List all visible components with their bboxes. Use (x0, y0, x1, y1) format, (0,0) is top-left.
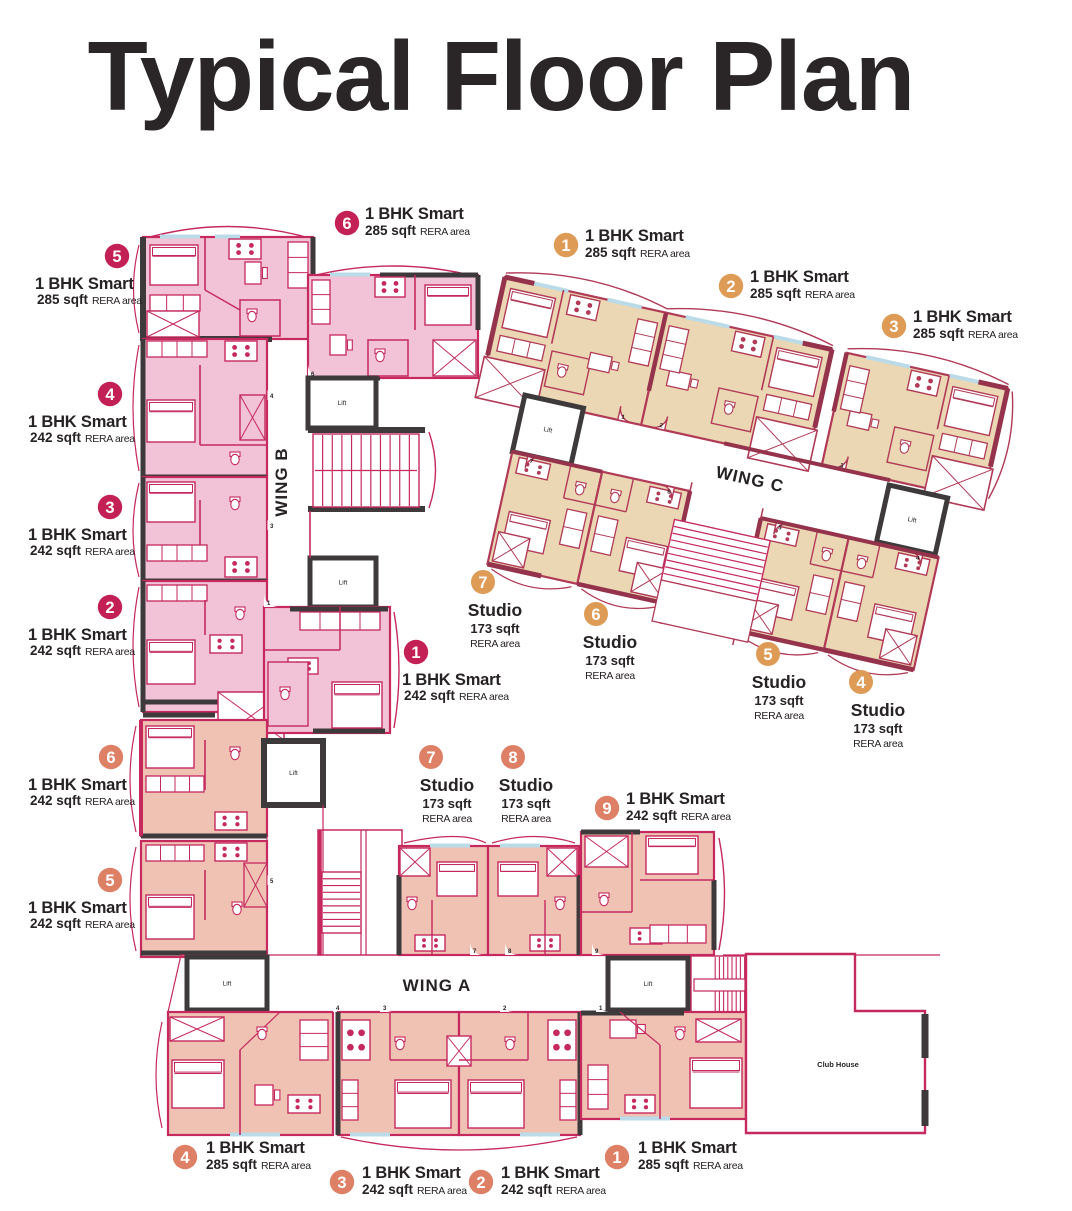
svg-text:1: 1 (561, 237, 570, 255)
svg-text:242 sqft: 242 sqft (30, 793, 82, 808)
svg-text:RERA area: RERA area (85, 919, 135, 931)
svg-text:RERA area: RERA area (261, 1160, 311, 1172)
svg-text:285 sqft: 285 sqft (585, 245, 637, 260)
svg-text:6: 6 (106, 749, 115, 767)
svg-text:1 BHK Smart: 1 BHK Smart (365, 205, 464, 223)
svg-text:Studio: Studio (468, 600, 522, 620)
svg-text:Lift: Lift (289, 770, 298, 777)
svg-text:173 sqft: 173 sqft (501, 796, 551, 811)
svg-text:Studio: Studio (420, 775, 474, 795)
svg-text:1 BHK Smart: 1 BHK Smart (28, 626, 127, 644)
svg-text:RERA area: RERA area (853, 738, 903, 750)
svg-text:285 sqft: 285 sqft (365, 223, 417, 238)
svg-text:RERA area: RERA area (693, 1160, 743, 1172)
svg-text:173 sqft: 173 sqft (853, 721, 903, 736)
svg-text:Lift: Lift (223, 981, 232, 988)
svg-text:242 sqft: 242 sqft (30, 643, 82, 658)
svg-text:RERA area: RERA area (85, 433, 135, 445)
svg-text:Typical Floor Plan: Typical Floor Plan (88, 21, 915, 131)
svg-text:Lift: Lift (644, 981, 653, 988)
svg-text:2: 2 (476, 1174, 485, 1192)
svg-text:242 sqft: 242 sqft (626, 808, 678, 823)
svg-text:WING B: WING B (272, 447, 291, 516)
svg-text:1 BHK Smart: 1 BHK Smart (28, 776, 127, 794)
svg-text:242 sqft: 242 sqft (30, 430, 82, 445)
svg-text:285 sqft: 285 sqft (206, 1157, 258, 1172)
svg-text:RERA area: RERA area (585, 670, 635, 682)
svg-text:RERA area: RERA area (417, 1185, 467, 1197)
svg-text:242 sqft: 242 sqft (501, 1182, 553, 1197)
svg-text:1 BHK Smart: 1 BHK Smart (402, 671, 501, 689)
svg-text:1 BHK Smart: 1 BHK Smart (585, 227, 684, 245)
svg-text:242 sqft: 242 sqft (404, 688, 456, 703)
svg-text:5: 5 (763, 646, 772, 664)
svg-text:1 BHK Smart: 1 BHK Smart (626, 790, 725, 808)
svg-text:173 sqft: 173 sqft (422, 796, 472, 811)
svg-text:5: 5 (112, 248, 121, 266)
svg-text:RERA area: RERA area (805, 289, 855, 301)
svg-text:4: 4 (105, 386, 115, 404)
svg-text:RERA area: RERA area (92, 295, 142, 307)
svg-text:Studio: Studio (851, 700, 905, 720)
svg-text:242 sqft: 242 sqft (30, 916, 82, 931)
svg-text:5: 5 (105, 872, 114, 890)
svg-text:6: 6 (342, 215, 351, 233)
svg-text:Club House: Club House (817, 1060, 859, 1069)
svg-text:173 sqft: 173 sqft (585, 653, 635, 668)
svg-text:9: 9 (602, 800, 611, 818)
svg-text:RERA area: RERA area (968, 329, 1018, 341)
svg-text:1 BHK Smart: 1 BHK Smart (362, 1164, 461, 1182)
svg-text:RERA area: RERA area (85, 546, 135, 558)
svg-text:285 sqft: 285 sqft (913, 326, 965, 341)
svg-text:173 sqft: 173 sqft (470, 621, 520, 636)
svg-text:Studio: Studio (499, 775, 553, 795)
svg-text:242 sqft: 242 sqft (30, 543, 82, 558)
svg-text:173 sqft: 173 sqft (754, 693, 804, 708)
svg-text:RERA area: RERA area (85, 796, 135, 808)
svg-text:RERA area: RERA area (422, 813, 472, 825)
svg-text:1 BHK Smart: 1 BHK Smart (501, 1164, 600, 1182)
svg-text:2: 2 (105, 599, 114, 617)
svg-text:3: 3 (889, 318, 898, 336)
svg-text:RERA area: RERA area (420, 226, 470, 238)
svg-text:3: 3 (105, 499, 114, 517)
svg-text:RERA area: RERA area (470, 638, 520, 650)
svg-text:RERA area: RERA area (85, 646, 135, 658)
svg-text:8: 8 (508, 749, 517, 767)
svg-text:1: 1 (612, 1149, 621, 1167)
svg-text:242 sqft: 242 sqft (362, 1182, 414, 1197)
svg-text:RERA area: RERA area (459, 691, 509, 703)
svg-text:Studio: Studio (583, 632, 637, 652)
svg-text:1 BHK Smart: 1 BHK Smart (35, 275, 134, 293)
svg-text:7: 7 (478, 574, 487, 592)
svg-text:4: 4 (180, 1149, 190, 1167)
svg-text:1 BHK Smart: 1 BHK Smart (28, 526, 127, 544)
svg-text:285 sqft: 285 sqft (750, 286, 802, 301)
svg-text:RERA area: RERA area (754, 710, 804, 722)
svg-text:WING A: WING A (403, 976, 472, 995)
svg-text:RERA area: RERA area (501, 813, 551, 825)
svg-text:RERA area: RERA area (556, 1185, 606, 1197)
svg-text:Lift: Lift (339, 580, 348, 587)
svg-text:285 sqft: 285 sqft (37, 292, 89, 307)
svg-text:4: 4 (856, 674, 866, 692)
svg-text:1 BHK Smart: 1 BHK Smart (206, 1139, 305, 1157)
svg-text:3: 3 (337, 1174, 346, 1192)
svg-text:Studio: Studio (752, 672, 806, 692)
svg-text:1: 1 (411, 644, 420, 662)
svg-text:1 BHK Smart: 1 BHK Smart (28, 413, 127, 431)
svg-text:1 BHK Smart: 1 BHK Smart (750, 268, 849, 286)
svg-text:1 BHK Smart: 1 BHK Smart (638, 1139, 737, 1157)
svg-text:2: 2 (726, 278, 735, 296)
svg-text:7: 7 (426, 749, 435, 767)
svg-text:1 BHK Smart: 1 BHK Smart (913, 308, 1012, 326)
svg-text:285 sqft: 285 sqft (638, 1157, 690, 1172)
svg-text:Lift: Lift (338, 400, 347, 407)
svg-text:1 BHK Smart: 1 BHK Smart (28, 899, 127, 917)
svg-text:RERA area: RERA area (640, 248, 690, 260)
svg-text:6: 6 (591, 606, 600, 624)
svg-text:RERA area: RERA area (681, 811, 731, 823)
